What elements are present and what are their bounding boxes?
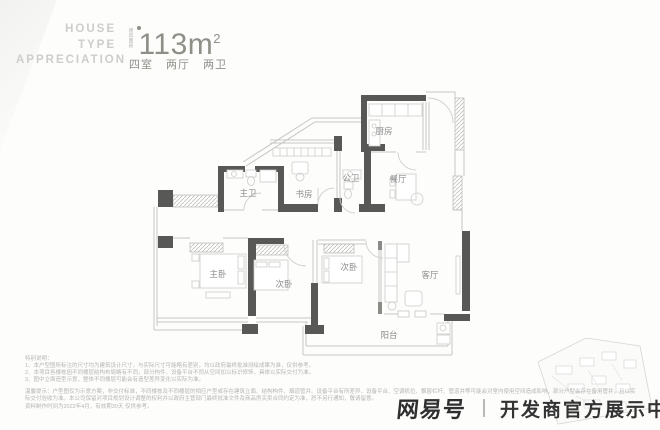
watermark: 网易号 ｜ 开发商官方展示中心 [397,392,660,424]
area-unit-label: 建筑面积 [128,28,134,54]
room-label-bedroom-2: 次卧 [275,279,293,289]
brand-line-1: HOUSE [16,22,116,38]
brand-tagline: HOUSE TYPE APPRECIATION [16,22,116,69]
area-sup: 2 [213,31,221,46]
room-labels: 厨房 餐厅 公卫 书房 主卫 主卧 次卧 次卧 客厅 阳台 [209,126,439,340]
room-label-study: 书房 [295,189,312,199]
notes-item-3: 3、图中立面造型示意，整体不同楼层可能会有造型差异变化以实际为准。 [25,377,637,384]
notes-title: 特别说明： [25,356,637,363]
floorplan: 厨房 餐厅 公卫 书房 主卫 主卧 次卧 次卧 客厅 阳台 [140,78,480,370]
room-label-master-bath: 主卫 [239,188,257,198]
room-label-balcony: 阳台 [380,330,397,340]
room-label-bedroom-3: 次卧 [340,262,358,272]
room-label-living: 客厅 [421,270,439,280]
brand-line-3: APPRECIATION [16,53,116,69]
watermark-brand: 网易号 [395,392,467,424]
layout-summary: 四室 两厅 两卫 [129,56,227,72]
room-label-guest-bath: 公卫 [342,173,360,183]
watermark-text: 开发商官方展示中心 [500,395,660,422]
watermark-divider: ｜ [475,395,493,421]
sliding-door [398,311,426,317]
room-label-dining: 餐厅 [389,174,407,184]
notes-item-2: 2、本项目各楼栋因不同楼层结构布局略有不同，部分构件、设备平台不同从空间加以标识… [25,370,637,377]
room-label-master-bedroom: 主卧 [209,269,227,279]
area-dot-icon [137,26,141,30]
room-label-kitchen: 厨房 [375,126,392,136]
notes-item-1: 1、本户型图所标注的尺寸均为建筑设计尺寸，与实际尺寸可能略有差别，均以政府最终批… [25,363,637,370]
brand-line-2: TYPE [16,38,116,54]
area-block: 建筑面积 113m2 [128,22,221,58]
